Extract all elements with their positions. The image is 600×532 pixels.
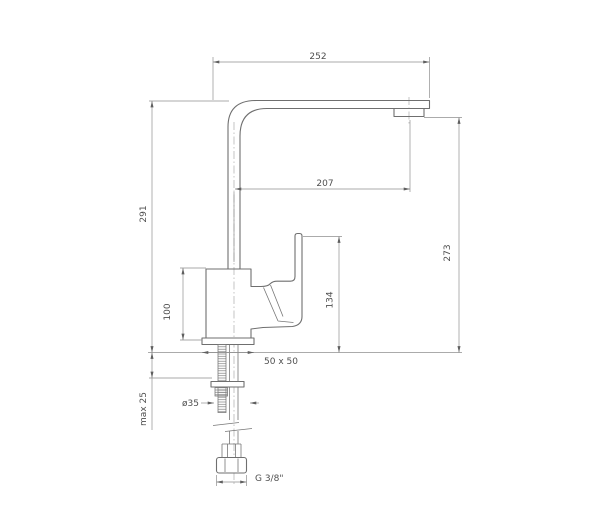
dimension-max-25: max 25 [139, 353, 212, 431]
dim-207-label: 207 [316, 179, 333, 189]
dim-252-label: 252 [309, 52, 326, 62]
dimension-100: 100 [163, 268, 206, 340]
dimension-50x50: 50 x 50 [202, 353, 298, 368]
dim-max-25-label: max 25 [139, 392, 149, 426]
dimension-273: 273 [424, 118, 462, 353]
dim-100-label: 100 [163, 303, 173, 320]
dim-o35-label: ø35 [182, 399, 199, 409]
dimension-291: 291 [139, 101, 229, 353]
connection-hex-nut [217, 458, 247, 474]
dimension-134: 134 [303, 237, 342, 353]
drawing-sheet: 252 207 291 273 134 100 max 25 50 x 5 [0, 0, 600, 532]
mounting-hardware [211, 345, 252, 474]
dim-50x50-label: 50 x 50 [264, 357, 298, 367]
dim-134-label: 134 [326, 291, 336, 308]
mounting-washer-plate [211, 382, 244, 388]
faucet-technical-drawing: 252 207 291 273 134 100 max 25 50 x 5 [0, 0, 600, 532]
threaded-stud [218, 345, 226, 413]
dimension-252: 252 [213, 52, 430, 100]
dim-273-label: 273 [443, 244, 453, 261]
base-plate [202, 338, 254, 345]
connector-collar [222, 444, 241, 458]
mounting-nut [215, 388, 228, 397]
hose-break-symbol [213, 423, 252, 432]
cartridge-detail-lines [264, 285, 294, 323]
faucet-outline [202, 101, 430, 345]
dim-g38-label: G 3/8" [255, 474, 283, 484]
dimension-connection-thread: G 3/8" [217, 474, 284, 486]
dim-291-label: 291 [139, 205, 149, 222]
centerlines [234, 97, 409, 486]
dimension-207: 207 [234, 120, 410, 262]
